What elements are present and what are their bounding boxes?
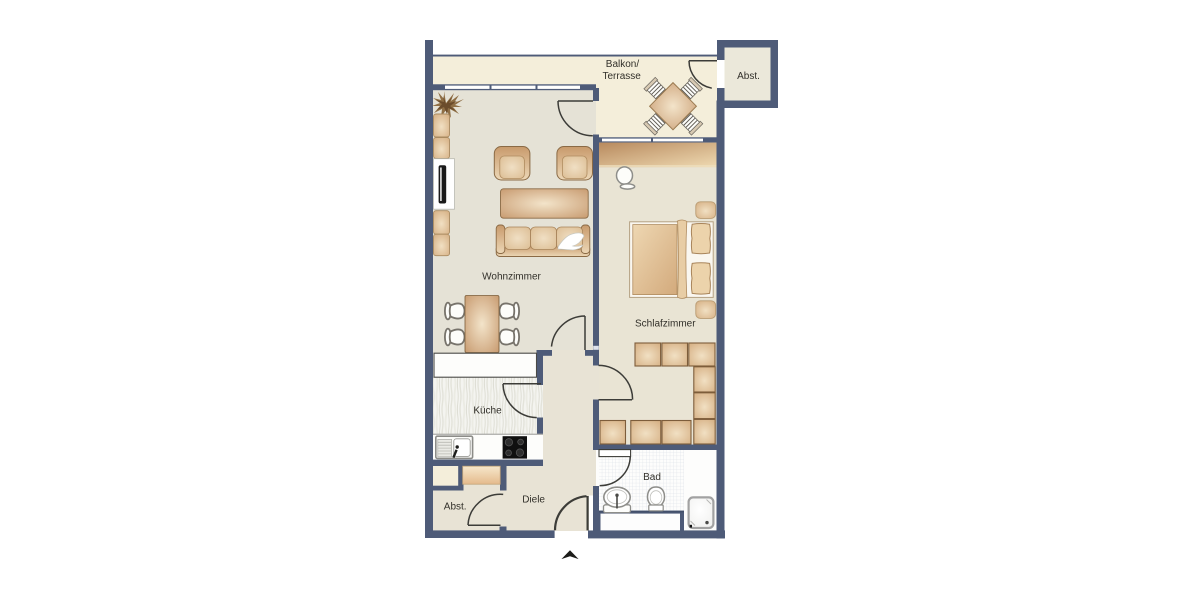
svg-text:Schlafzimmer: Schlafzimmer (635, 319, 696, 330)
svg-text:Balkon/: Balkon/ (606, 59, 640, 70)
svg-text:Wohnzimmer: Wohnzimmer (482, 271, 541, 282)
svg-text:Bad: Bad (643, 472, 661, 483)
svg-text:Abst.: Abst. (444, 502, 467, 513)
svg-text:Küche: Küche (473, 405, 502, 416)
svg-text:Terrasse: Terrasse (603, 71, 642, 82)
svg-text:Abst.: Abst. (737, 71, 760, 82)
svg-text:Diele: Diele (522, 494, 545, 505)
